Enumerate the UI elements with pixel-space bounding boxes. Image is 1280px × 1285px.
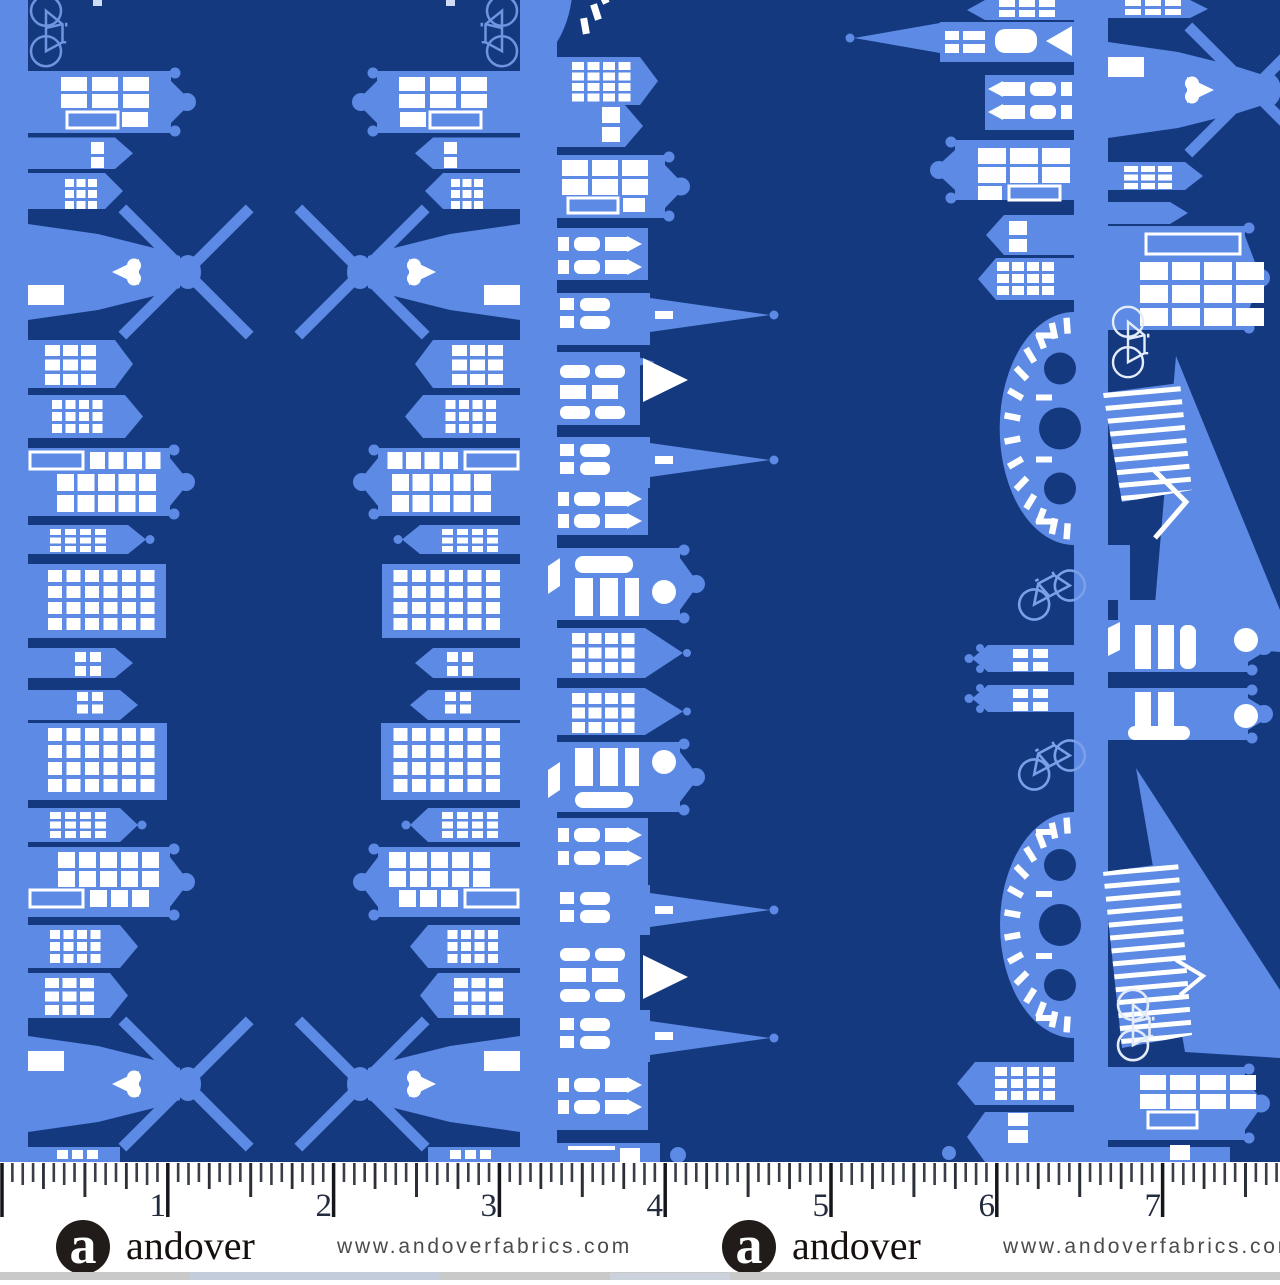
svg-text:4: 4 xyxy=(647,1188,664,1224)
svg-text:6: 6 xyxy=(979,1188,996,1224)
svg-text:3: 3 xyxy=(481,1188,498,1224)
svg-text:www.andoverfabrics.com: www.andoverfabrics.com xyxy=(336,1235,632,1258)
svg-text:www.andoverfabrics.com: www.andoverfabrics.com xyxy=(1002,1235,1280,1258)
svg-text:andover: andover xyxy=(126,1223,255,1268)
svg-text:5: 5 xyxy=(813,1188,830,1224)
svg-text:2: 2 xyxy=(316,1188,333,1224)
svg-text:a: a xyxy=(70,1215,97,1275)
svg-text:a: a xyxy=(736,1215,763,1275)
svg-text:1: 1 xyxy=(150,1188,167,1224)
svg-text:andover: andover xyxy=(792,1223,921,1268)
svg-text:7: 7 xyxy=(1145,1188,1162,1224)
